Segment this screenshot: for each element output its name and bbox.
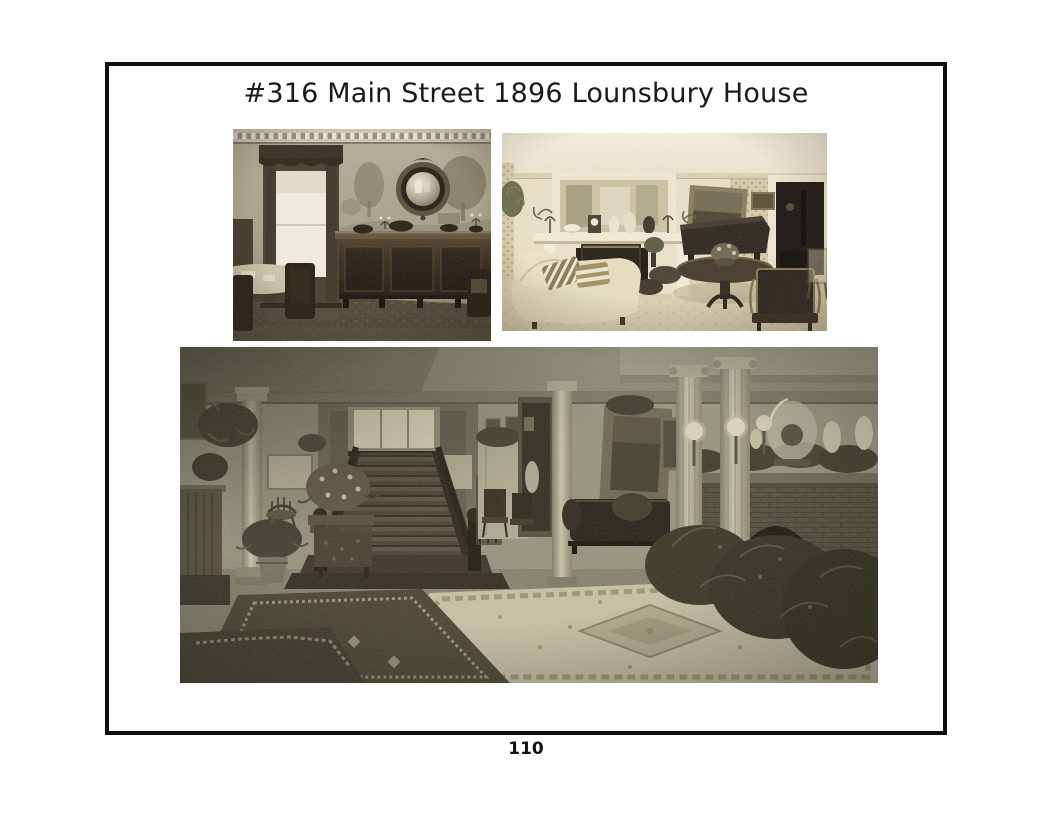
dining-room-illustration: [233, 129, 491, 341]
dining-room-photo: [233, 129, 491, 341]
parlor-illustration: [502, 133, 827, 331]
parlor-photo: [502, 133, 827, 331]
page-frame: #316 Main Street 1896 Lounsbury House: [105, 62, 947, 735]
scanned-page: #316 Main Street 1896 Lounsbury House: [0, 0, 1056, 816]
grand-hall-photo: [180, 347, 878, 683]
grand-hall-illustration: [180, 347, 878, 683]
page-title: #316 Main Street 1896 Lounsbury House: [109, 78, 943, 109]
page-number: 110: [105, 739, 947, 759]
